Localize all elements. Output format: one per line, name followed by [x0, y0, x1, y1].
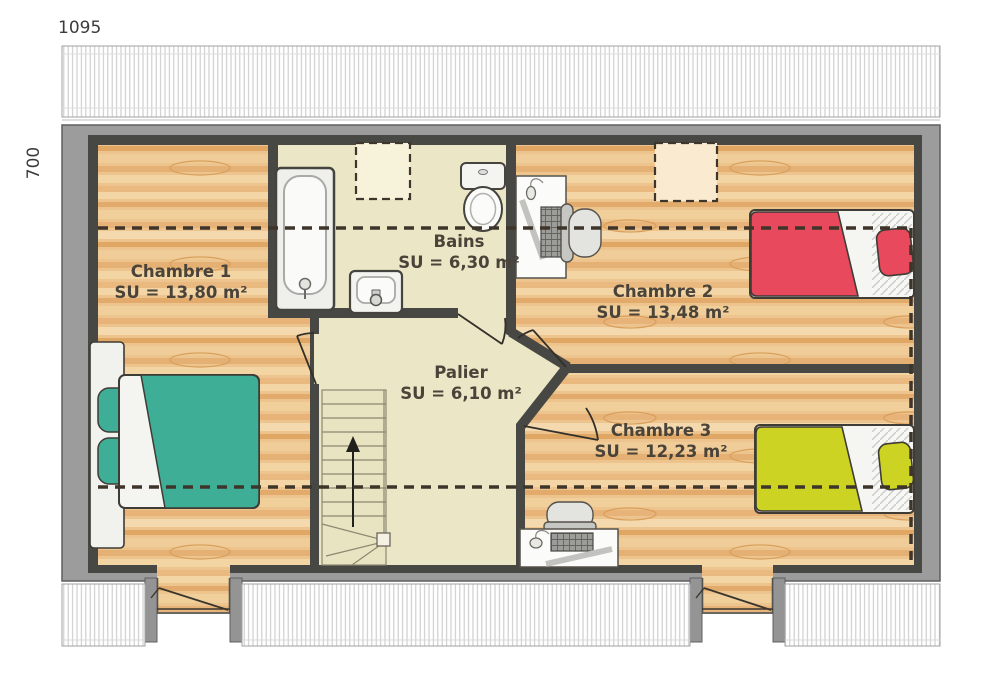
dimension-width-label: 1095	[58, 18, 101, 38]
staircase	[322, 390, 390, 565]
toilet	[461, 163, 505, 231]
floor-plan: 1095 700	[0, 0, 1000, 689]
dormer-right	[690, 565, 785, 642]
sink	[350, 271, 402, 313]
room-label-chambre2: Chambre 2	[613, 282, 714, 301]
stair-newel	[377, 533, 390, 546]
room-label-bains: Bains	[434, 232, 485, 251]
floor-plan-page: 1095 700	[0, 0, 1000, 689]
desk-chambre3	[520, 529, 618, 567]
room-area-palier: SU = 6,10 m²	[400, 384, 521, 403]
dormer-left	[145, 565, 242, 642]
pillow	[876, 227, 915, 276]
wall-chambre2-chambre3	[566, 364, 914, 373]
dimension-height-label: 700	[24, 147, 44, 179]
pillow	[878, 441, 915, 490]
roof-strip-top	[62, 46, 940, 120]
keyboard	[551, 533, 593, 551]
skylight-bains	[356, 143, 410, 199]
chair-chambre3	[544, 502, 596, 531]
room-area-chambre2: SU = 13,48 m²	[597, 303, 730, 322]
mouse	[530, 538, 542, 548]
bed-single-yellow	[755, 425, 914, 513]
wall-bains-chambre2	[506, 145, 516, 334]
mouse	[527, 187, 536, 200]
wall-chambre1-palier	[310, 384, 319, 565]
chair-chambre2	[561, 204, 601, 262]
room-label-palier: Palier	[434, 363, 488, 382]
room-area-bains: SU = 6,30 m²	[398, 253, 519, 272]
wall-palier-stub	[310, 308, 319, 334]
room-area-chambre3: SU = 12,23 m²	[595, 442, 728, 461]
room-label-chambre3: Chambre 3	[611, 421, 712, 440]
bathtub	[276, 168, 334, 310]
room-area-chambre1: SU = 13,80 m²	[115, 283, 248, 302]
skylight-chambre2	[655, 143, 717, 201]
bed-single-red	[750, 210, 914, 298]
room-label-chambre1: Chambre 1	[131, 262, 232, 281]
